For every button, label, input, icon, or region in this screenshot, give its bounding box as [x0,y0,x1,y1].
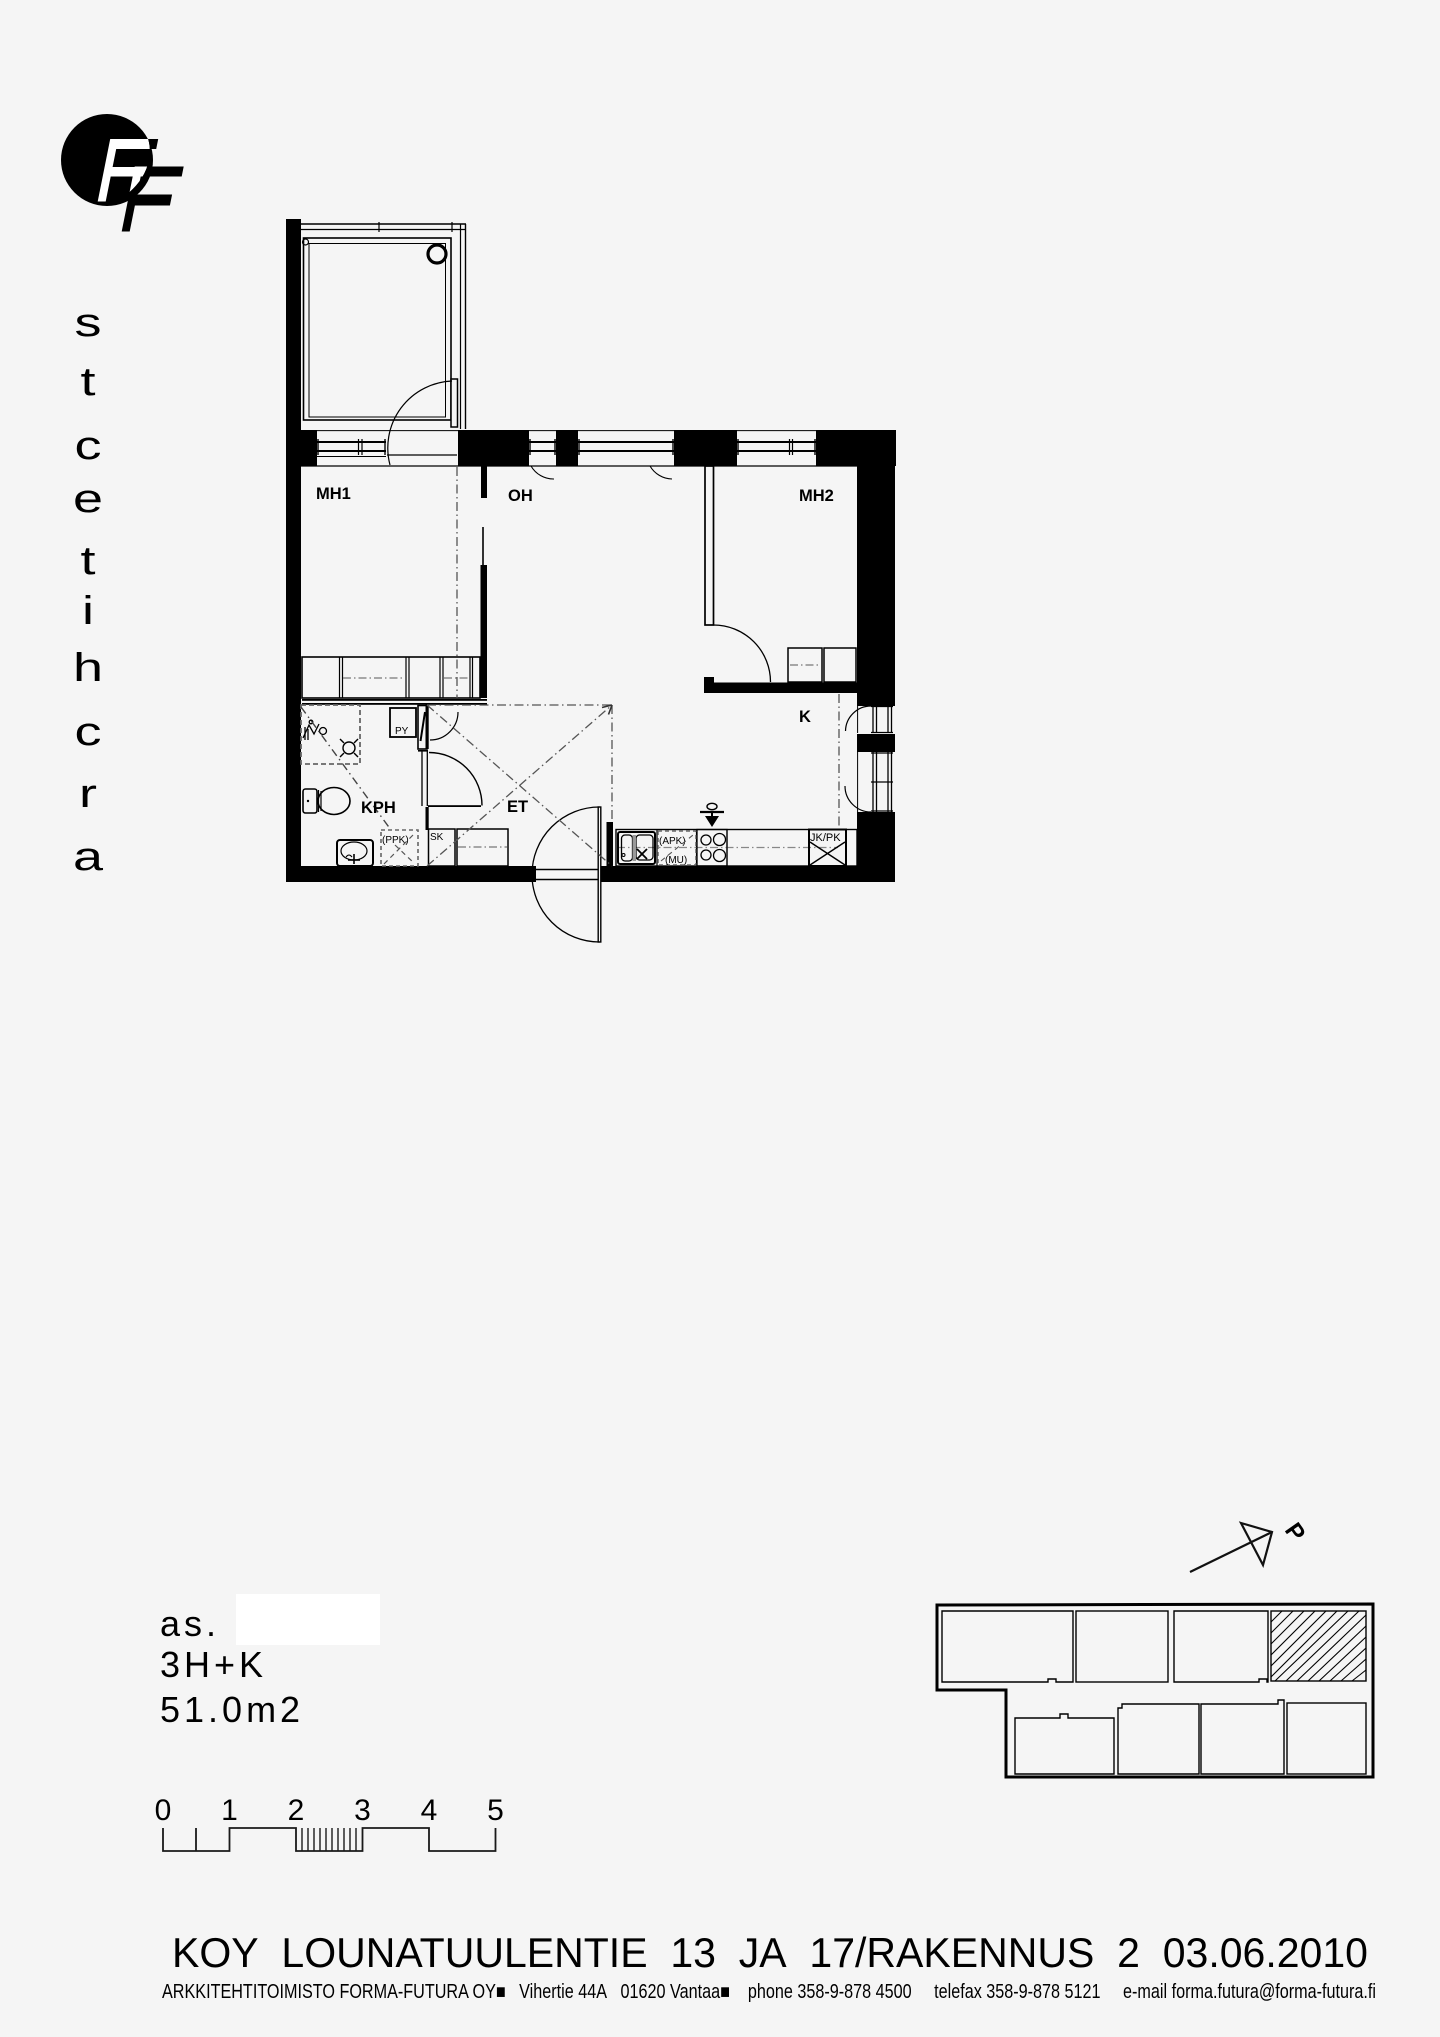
svg-text:PY: PY [395,726,409,737]
svg-text:1: 1 [221,1794,238,1827]
svg-text:c: c [75,710,102,755]
svg-text:r: r [79,772,97,817]
svg-text:MH1: MH1 [316,485,351,503]
svg-text:4: 4 [421,1794,438,1827]
svg-text:K: K [799,708,811,726]
svg-text:i: i [82,589,94,634]
svg-text:e: e [73,477,103,522]
svg-text:(MU): (MU) [665,855,687,866]
svg-text:s: s [75,301,102,346]
svg-text:h: h [73,646,103,691]
svg-text:(APK): (APK) [659,836,686,847]
svg-text:t: t [81,539,96,584]
svg-text:ARKKITEHTITOIMISTO FORMA-FUTUR: ARKKITEHTITOIMISTO FORMA-FUTURA OY■ Vihe… [162,1981,1376,2003]
svg-text:(PPK): (PPK) [382,835,409,846]
svg-text:3: 3 [354,1794,371,1827]
svg-text:5: 5 [487,1794,504,1827]
svg-text:OH: OH [508,487,533,505]
svg-text:SK: SK [430,832,444,843]
svg-text:MH2: MH2 [799,487,834,505]
svg-text:P: P [1279,1518,1310,1547]
svg-text:2: 2 [288,1794,305,1827]
svg-text:JK/PK: JK/PK [810,832,841,844]
svg-text:a: a [73,835,104,880]
svg-text:0: 0 [155,1794,172,1827]
svg-text:c: c [75,424,102,469]
svg-text:t: t [81,360,96,405]
svg-text:as.: as. [160,1603,220,1644]
svg-text:KPH: KPH [361,799,396,817]
svg-text:3H+K: 3H+K [160,1644,267,1685]
svg-text:KOY LOUNATUULENTIE 13 JA 1: KOY LOUNATUULENTIE 13 JA 17/RAKENNUS 2 0… [172,1929,1368,1976]
svg-text:51.0m2: 51.0m2 [160,1689,304,1730]
svg-text:ET: ET [507,798,528,816]
